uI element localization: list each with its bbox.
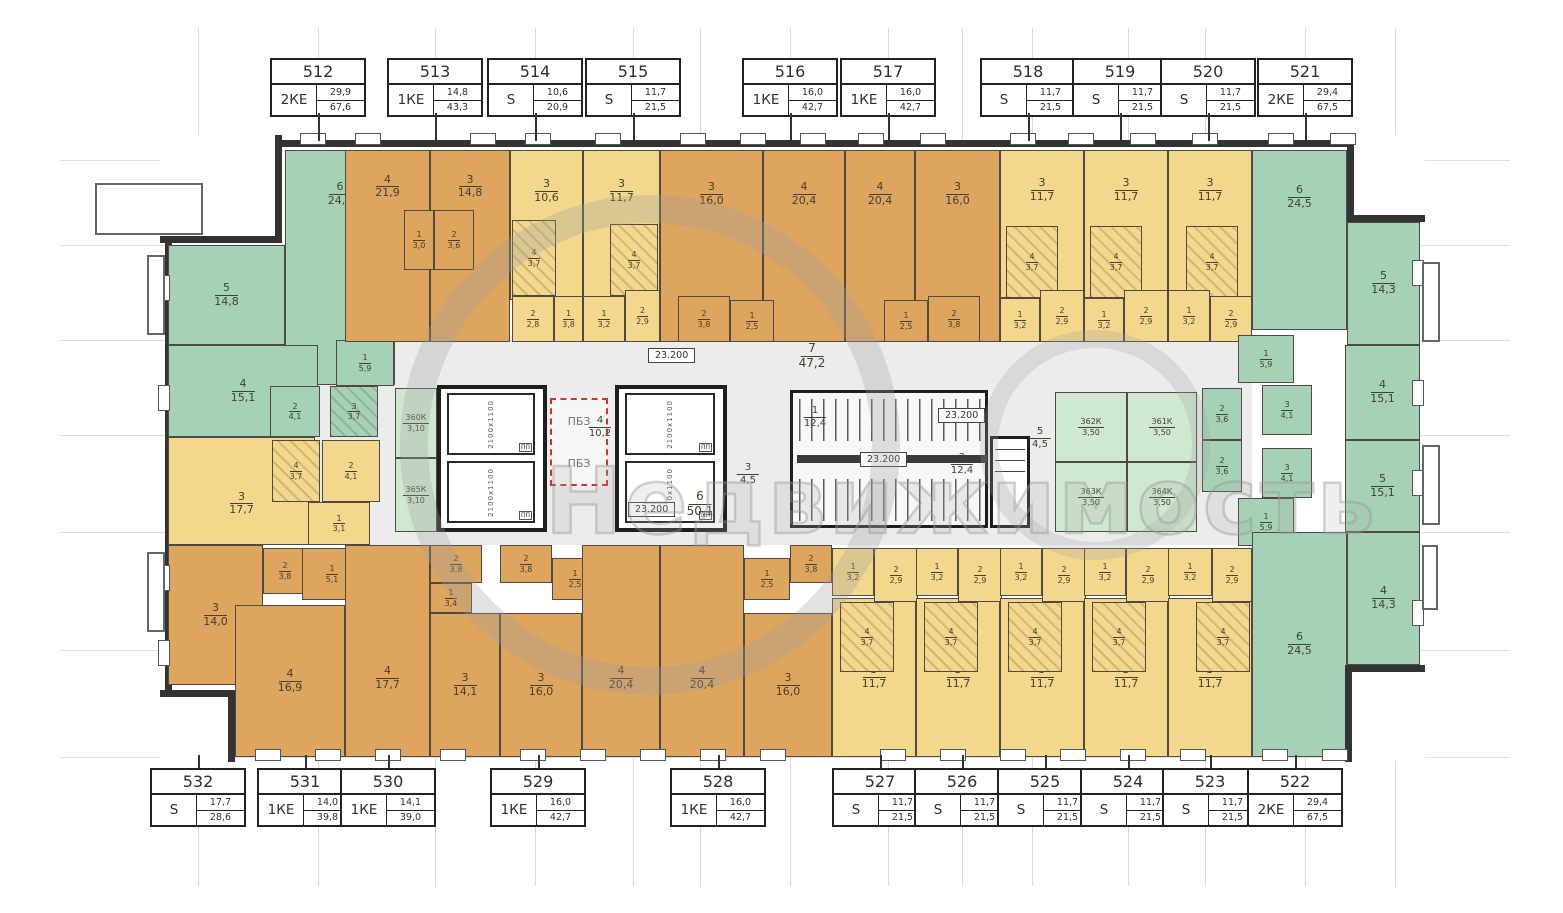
room-label: 317,7 xyxy=(229,491,254,517)
balcony xyxy=(147,552,165,632)
room-number: 1 xyxy=(746,311,757,321)
room-label: 34,1 xyxy=(1281,463,1294,482)
apartment-living-area: 29,9 xyxy=(317,85,364,101)
room-label: 417,7 xyxy=(375,665,400,691)
room-label: 13,2 xyxy=(1014,310,1027,329)
apartment-leader-line xyxy=(318,113,320,141)
room: 23,8 xyxy=(430,545,482,583)
apartment-type: 1КЕ xyxy=(672,795,717,825)
apartment-label: 5301КЕ14,139,0 xyxy=(340,768,436,827)
apartment-number: 527 xyxy=(834,770,926,795)
room-label: 747,2 xyxy=(799,342,826,371)
room-area: 2,5 xyxy=(761,580,774,589)
apartment-leader-line xyxy=(1128,755,1130,768)
room-area: 14,3 xyxy=(1371,599,1396,612)
apartment-leader-line xyxy=(962,755,964,768)
room-label: 23,8 xyxy=(805,554,818,573)
apartment-type: 2КЕ xyxy=(272,85,317,115)
room-number: 2 xyxy=(1058,565,1069,575)
apartment-type: S xyxy=(1162,85,1207,115)
apartment-label: 5222КЕ29,467,5 xyxy=(1247,768,1343,827)
room: 414,3 xyxy=(1347,532,1420,665)
window xyxy=(255,749,281,761)
room-area: 10,6 xyxy=(534,192,559,205)
room: 420,4 xyxy=(582,545,660,757)
storage-room: 364К3,50 xyxy=(1127,462,1197,532)
apartment-number: 520 xyxy=(1162,60,1254,85)
room-number: 4 xyxy=(279,668,302,682)
room-area: 11,7 xyxy=(1030,678,1055,691)
window xyxy=(1180,749,1206,761)
room-label: 316,0 xyxy=(945,181,970,207)
room-number: 1 xyxy=(563,309,574,319)
room-number: 4 xyxy=(528,248,539,258)
room-number: 3 xyxy=(1031,177,1054,191)
window xyxy=(920,133,946,145)
corridor-label: 54,5 xyxy=(1029,426,1051,450)
room-label: 416,9 xyxy=(278,668,303,694)
room-number: 4 xyxy=(589,415,611,428)
room-number: 2 xyxy=(1142,565,1153,575)
building-step-cutout xyxy=(160,690,235,762)
room-number: 2 xyxy=(448,230,459,240)
window xyxy=(740,133,766,145)
window xyxy=(760,749,786,761)
room-label: 361К3,50 xyxy=(1149,417,1176,436)
room: 514,3 xyxy=(1347,222,1420,345)
room-label: 624,5 xyxy=(1287,631,1312,657)
room-area: 3,6 xyxy=(1216,415,1229,424)
apartment-leader-line xyxy=(1305,113,1307,141)
room-area: 3,7 xyxy=(528,259,541,268)
apartment-leader-line xyxy=(1295,755,1297,768)
level-mark: 23.200 xyxy=(938,408,985,423)
apartment-type: S xyxy=(834,795,879,825)
room-area: 12,4 xyxy=(951,465,973,477)
elevator-size-label: 2100х1100 xyxy=(487,468,495,517)
room-number: 4 xyxy=(691,665,714,679)
room-area: 4,1 xyxy=(289,412,302,421)
room-area: 20,4 xyxy=(690,679,715,692)
room-area: 5,9 xyxy=(1260,360,1273,369)
room-label: 43,7 xyxy=(1029,627,1042,646)
room-number: 364К xyxy=(1149,487,1176,497)
room-area: 3,8 xyxy=(562,320,575,329)
room: 13,2 xyxy=(1168,548,1212,596)
room-area: 10,2 xyxy=(589,428,611,440)
room-number: 1 xyxy=(1260,349,1271,359)
room-area: 3,7 xyxy=(1217,638,1230,647)
room-number: 4 xyxy=(1371,379,1394,393)
room-number: 5 xyxy=(215,282,238,296)
window xyxy=(1060,749,1086,761)
room-label: 112,4 xyxy=(804,405,826,429)
apartment-label: 5281КЕ16,042,7 xyxy=(670,768,766,827)
window xyxy=(700,749,726,761)
apartment-total-area: 21,5 xyxy=(1207,101,1254,116)
fire-elevator-label: ПП xyxy=(519,511,532,520)
room-label: 22,9 xyxy=(1058,565,1071,584)
pbz-label: ПБЗ xyxy=(568,415,591,428)
room-label: 43,7 xyxy=(1026,252,1039,271)
room-label: 34,5 xyxy=(737,462,759,486)
room: 23,6 xyxy=(1202,388,1242,440)
room: 43,7 xyxy=(1186,226,1238,298)
room-number: 2 xyxy=(1216,456,1227,466)
room-label: 314,1 xyxy=(453,672,478,698)
room-number: 3 xyxy=(459,174,482,188)
room-number: 7 xyxy=(800,342,824,357)
room-label: 22,9 xyxy=(1056,306,1069,325)
corridor-label: 212,4 xyxy=(951,452,973,476)
fire-elevator-label: ПП xyxy=(519,443,532,452)
room-label: 13,4 xyxy=(445,588,458,607)
room-label: 415,1 xyxy=(231,378,256,404)
window xyxy=(1192,133,1218,145)
apartment-number: 513 xyxy=(389,60,481,85)
room-area: 2,9 xyxy=(1140,317,1153,326)
room-area: 11,7 xyxy=(862,678,887,691)
apartment-number: 512 xyxy=(272,60,364,85)
room: 43,7 xyxy=(1006,226,1058,298)
apartment-number: 522 xyxy=(1249,770,1341,795)
room-area: 4,1 xyxy=(345,472,358,481)
apartment-type: 2КЕ xyxy=(1259,85,1304,115)
room: 13,2 xyxy=(1000,298,1040,342)
room-label: 23,8 xyxy=(698,309,711,328)
room: 13,2 xyxy=(1000,548,1042,596)
room-area: 2,9 xyxy=(1142,576,1155,585)
room-area: 3,0 xyxy=(413,241,426,250)
room-label: 12,5 xyxy=(569,569,582,588)
room-label: 13,2 xyxy=(1099,562,1112,581)
room-number: 1 xyxy=(900,311,911,321)
room-area: 16,0 xyxy=(945,195,970,208)
room-label: 43,7 xyxy=(1217,627,1230,646)
room-number: 3 xyxy=(1199,177,1222,191)
window xyxy=(680,133,706,145)
room-area: 11,7 xyxy=(1030,191,1055,204)
room-label: 43,7 xyxy=(628,250,641,269)
room-area: 3,2 xyxy=(1099,573,1112,582)
room-label: 22,8 xyxy=(527,309,540,328)
room-area: 3,7 xyxy=(1110,263,1123,272)
room-label: 514,8 xyxy=(214,282,239,308)
room: 13,2 xyxy=(1168,290,1210,342)
apartment-living-area: 10,6 xyxy=(534,85,581,101)
room: 420,4 xyxy=(660,545,744,757)
room-number: 2 xyxy=(450,554,461,564)
room: 417,7 xyxy=(345,545,430,757)
apartment-label: 525S11,721,5 xyxy=(997,768,1093,827)
room-number: 2 xyxy=(974,565,985,575)
room-label: 12,5 xyxy=(900,311,913,330)
apartment-living-area: 11,7 xyxy=(632,85,679,101)
room-number: 4 xyxy=(232,378,255,392)
apartment-type: S xyxy=(489,85,534,115)
apartment-total-area: 21,5 xyxy=(632,101,679,116)
room-label: 415,1 xyxy=(1370,379,1395,405)
room: 34,1 xyxy=(1262,448,1312,498)
room-number: 1 xyxy=(1183,306,1194,316)
room-label: 22,9 xyxy=(636,306,649,325)
room: 23,8 xyxy=(678,296,730,342)
room-label: 364К3,50 xyxy=(1149,487,1176,506)
apartment-type: 1КЕ xyxy=(389,85,434,115)
room-area: 20,4 xyxy=(609,679,634,692)
room-label: 420,4 xyxy=(792,181,817,207)
room: 12,5 xyxy=(744,558,790,600)
room-number: 361К xyxy=(1149,417,1176,427)
room-area: 2,9 xyxy=(890,576,903,585)
room-number: 4 xyxy=(1206,252,1217,262)
room: 416,9 xyxy=(235,605,345,757)
apartment-label: 5122КЕ29,967,6 xyxy=(270,58,366,117)
room-label: 43,7 xyxy=(1206,252,1219,271)
window xyxy=(1262,749,1288,761)
apartment-living-area: 29,4 xyxy=(1294,795,1341,811)
room-area: 3,7 xyxy=(348,412,361,421)
room-number: 4 xyxy=(628,250,639,260)
window xyxy=(440,749,466,761)
room-label: 13,2 xyxy=(1183,306,1196,325)
room-area: 3,2 xyxy=(931,573,944,582)
room-number: 1 xyxy=(569,569,580,579)
storage-room: 360К3,10 xyxy=(395,388,437,458)
window xyxy=(315,749,341,761)
room: 34,1 xyxy=(1262,385,1312,435)
room-area: 3,2 xyxy=(1184,573,1197,582)
room-label: 311,7 xyxy=(1114,177,1139,203)
apartment-type: S xyxy=(1164,795,1209,825)
room-area: 4,5 xyxy=(737,475,759,487)
room-number: 4 xyxy=(1026,252,1037,262)
room-area: 5,1 xyxy=(326,575,339,584)
apartment-leader-line xyxy=(718,755,720,768)
room-area: 2,5 xyxy=(746,322,759,331)
room-area: 24,5 xyxy=(1287,645,1312,658)
apartment-living-area: 11,7 xyxy=(1207,85,1254,101)
window xyxy=(880,749,906,761)
room-number: 4 xyxy=(1110,252,1121,262)
room-area: 2,9 xyxy=(1225,320,1238,329)
room-number: 4 xyxy=(1029,627,1040,637)
room-label: 24,1 xyxy=(345,461,358,480)
elevator-size-label: 2100х1100 xyxy=(487,400,495,449)
room-area: 2,9 xyxy=(1226,576,1239,585)
apartment-total-area: 42,7 xyxy=(789,101,836,116)
window xyxy=(580,749,606,761)
room-area: 2,8 xyxy=(527,320,540,329)
apartment-number: 523 xyxy=(1164,770,1256,795)
room-area: 3,7 xyxy=(1206,263,1219,272)
room-area: 2,5 xyxy=(569,580,582,589)
room-area: 11,7 xyxy=(609,192,634,205)
apartment-total-area: 42,7 xyxy=(537,811,584,826)
apartment-label: 523S11,721,5 xyxy=(1162,768,1258,827)
room-area: 3,8 xyxy=(520,565,533,574)
room: 13,2 xyxy=(916,548,958,596)
corridor-label: 747,2 xyxy=(799,342,826,371)
room: 624,5 xyxy=(1252,150,1347,330)
apartment-number: 514 xyxy=(489,60,581,85)
room-label: 54,5 xyxy=(1029,426,1051,450)
room-number: 1 xyxy=(804,405,826,418)
window xyxy=(1120,749,1146,761)
apartment-type: 1КЕ xyxy=(259,795,304,825)
room: 515,1 xyxy=(1345,440,1420,532)
apartment-label: 520S11,721,5 xyxy=(1160,58,1256,117)
pbz-label: ПБЗ xyxy=(568,457,591,470)
room-label: 22,9 xyxy=(1226,565,1239,584)
balcony xyxy=(1422,445,1440,525)
room-number: 1 xyxy=(931,562,942,572)
room-number: 3 xyxy=(700,181,723,195)
apartment-total-area: 39,0 xyxy=(387,811,434,826)
apartment-living-area: 17,7 xyxy=(197,795,244,811)
window xyxy=(595,133,621,145)
room-number: 1 xyxy=(333,514,344,524)
room: 43,7 xyxy=(1092,602,1146,672)
room: 43,7 xyxy=(1090,226,1142,298)
level-mark: 23.200 xyxy=(648,348,695,363)
storage-room: 362К3,50 xyxy=(1055,392,1127,462)
apartment-living-area: 14,1 xyxy=(387,795,434,811)
apartment-living-area: 16,0 xyxy=(717,795,764,811)
room-label: 15,9 xyxy=(1260,512,1273,531)
room: 43,7 xyxy=(272,440,320,502)
room-area: 2,5 xyxy=(900,322,913,331)
room-number: 2 xyxy=(890,565,901,575)
room-label: 12,5 xyxy=(746,311,759,330)
room-label: 43,7 xyxy=(528,248,541,267)
room-area: 2,9 xyxy=(1058,576,1071,585)
window xyxy=(1010,133,1036,145)
apartment-leader-line xyxy=(538,755,540,768)
room-area: 14,0 xyxy=(203,616,228,629)
room-label: 365К3,10 xyxy=(403,485,430,504)
room-label: 310,6 xyxy=(534,178,559,204)
apartment-leader-line xyxy=(305,755,307,768)
room-label: 420,4 xyxy=(868,181,893,207)
room-label: 23,6 xyxy=(1216,456,1229,475)
room-area: 14,3 xyxy=(1371,284,1396,297)
room-number: 2 xyxy=(1056,306,1067,316)
room: 22,9 xyxy=(1212,548,1252,602)
room-number: 1 xyxy=(1099,562,1110,572)
room-label: 311,7 xyxy=(1030,177,1055,203)
room: 43,7 xyxy=(1196,602,1250,672)
room-area: 3,10 xyxy=(403,496,430,505)
room-area: 21,9 xyxy=(375,187,400,200)
room-number: 4 xyxy=(1372,585,1395,599)
room: 22,9 xyxy=(958,548,1002,602)
room-area: 3,50 xyxy=(1149,498,1176,507)
room-area: 3,1 xyxy=(333,524,346,533)
apartment-number: 524 xyxy=(1082,770,1174,795)
room-area: 11,7 xyxy=(1198,678,1223,691)
apartment-type: S xyxy=(982,85,1027,115)
room-number: 2 xyxy=(805,554,816,564)
room-label: 22,9 xyxy=(1142,565,1155,584)
room-area: 12,4 xyxy=(804,418,826,430)
apartment-total-area: 21,5 xyxy=(1027,101,1074,116)
room-number: 1 xyxy=(761,569,772,579)
window xyxy=(1412,380,1424,406)
apartment-leader-line xyxy=(1045,755,1047,768)
room-label: 13,0 xyxy=(413,230,426,249)
apartment-type: 1КЕ xyxy=(492,795,537,825)
room-number: 6 xyxy=(1288,631,1311,645)
apartment-leader-line xyxy=(1210,755,1212,768)
room-area: 3,2 xyxy=(1015,573,1028,582)
room-area: 11,7 xyxy=(946,678,971,691)
room-label: 13,2 xyxy=(931,562,944,581)
room: 624,5 xyxy=(1252,532,1347,757)
room-label: 420,4 xyxy=(609,665,634,691)
room-label: 650,1 xyxy=(687,490,714,519)
room-area: 4,1 xyxy=(1281,474,1294,483)
apartment-type: 2КЕ xyxy=(1249,795,1294,825)
apartment-leader-line xyxy=(633,113,635,141)
room-number: 2 xyxy=(698,309,709,319)
room-number: 3 xyxy=(530,672,553,686)
room-label: 316,0 xyxy=(699,181,724,207)
room-label: 13,2 xyxy=(1184,562,1197,581)
apartment-leader-line xyxy=(1120,113,1122,141)
room: 23,8 xyxy=(928,296,980,342)
room-number: 6 xyxy=(688,490,712,505)
apartment-label: 5161КЕ16,042,7 xyxy=(742,58,838,117)
room-label: 22,9 xyxy=(1140,306,1153,325)
room-area: 50,1 xyxy=(687,505,714,519)
apartment-type: S xyxy=(999,795,1044,825)
room-area: 2,9 xyxy=(974,576,987,585)
room-area: 16,0 xyxy=(529,686,554,699)
apartment-label: 5311КЕ14,039,8 xyxy=(257,768,353,827)
building-step-cutout xyxy=(1347,135,1425,222)
window xyxy=(158,385,170,411)
elevator-shaft: 2100х1100ПП xyxy=(625,393,715,455)
elevator-size-label: 2100х1100 xyxy=(666,400,674,449)
window xyxy=(800,133,826,145)
room-number: 363К xyxy=(1078,487,1105,497)
room-label: 13,2 xyxy=(1015,562,1028,581)
window xyxy=(1130,133,1156,145)
room-area: 3,8 xyxy=(450,565,463,574)
apartment-total-area: 43,3 xyxy=(434,101,481,116)
room-label: 420,4 xyxy=(690,665,715,691)
room-label: 624,5 xyxy=(1287,184,1312,210)
room-number: 2 xyxy=(1216,404,1227,414)
elevator-shaft: 2100х1100ПП xyxy=(447,461,535,523)
room-label: 15,9 xyxy=(1260,349,1273,368)
window xyxy=(1268,133,1294,145)
room-label: 23,6 xyxy=(448,230,461,249)
room-number: 2 xyxy=(289,402,300,412)
room-number: 4 xyxy=(1113,627,1124,637)
room-label: 12,5 xyxy=(761,569,774,588)
window xyxy=(1330,133,1356,145)
room-label: 362К3,50 xyxy=(1078,417,1105,436)
apartment-leader-line xyxy=(1208,113,1210,141)
apartment-leader-line xyxy=(388,755,390,768)
balcony xyxy=(1422,262,1440,342)
room: 13,2 xyxy=(1084,548,1126,596)
apartment-total-area: 21,5 xyxy=(1119,101,1166,116)
room-number: 4 xyxy=(793,181,816,195)
room-label: 13,2 xyxy=(1098,310,1111,329)
